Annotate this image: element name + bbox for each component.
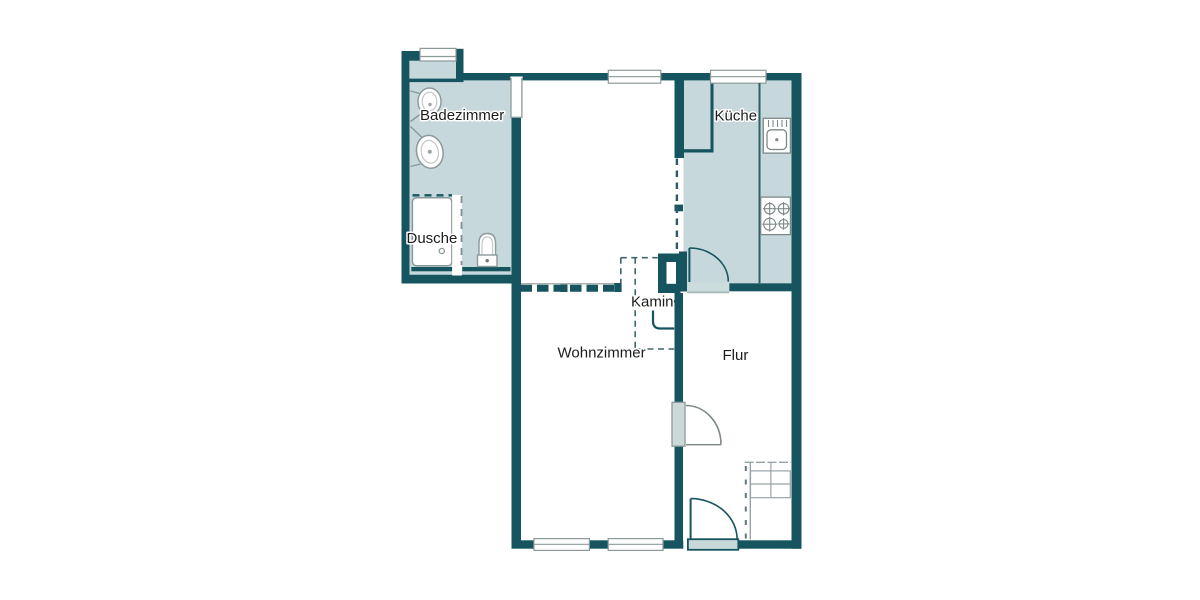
svg-text:Badezimmer: Badezimmer — [420, 107, 504, 124]
svg-text:Flur: Flur — [723, 347, 749, 364]
svg-text:Wohnzimmer: Wohnzimmer — [558, 345, 646, 362]
svg-text:Dusche: Dusche — [407, 230, 458, 247]
svg-text:Kamin: Kamin — [631, 294, 674, 311]
svg-text:Küche: Küche — [715, 108, 758, 125]
